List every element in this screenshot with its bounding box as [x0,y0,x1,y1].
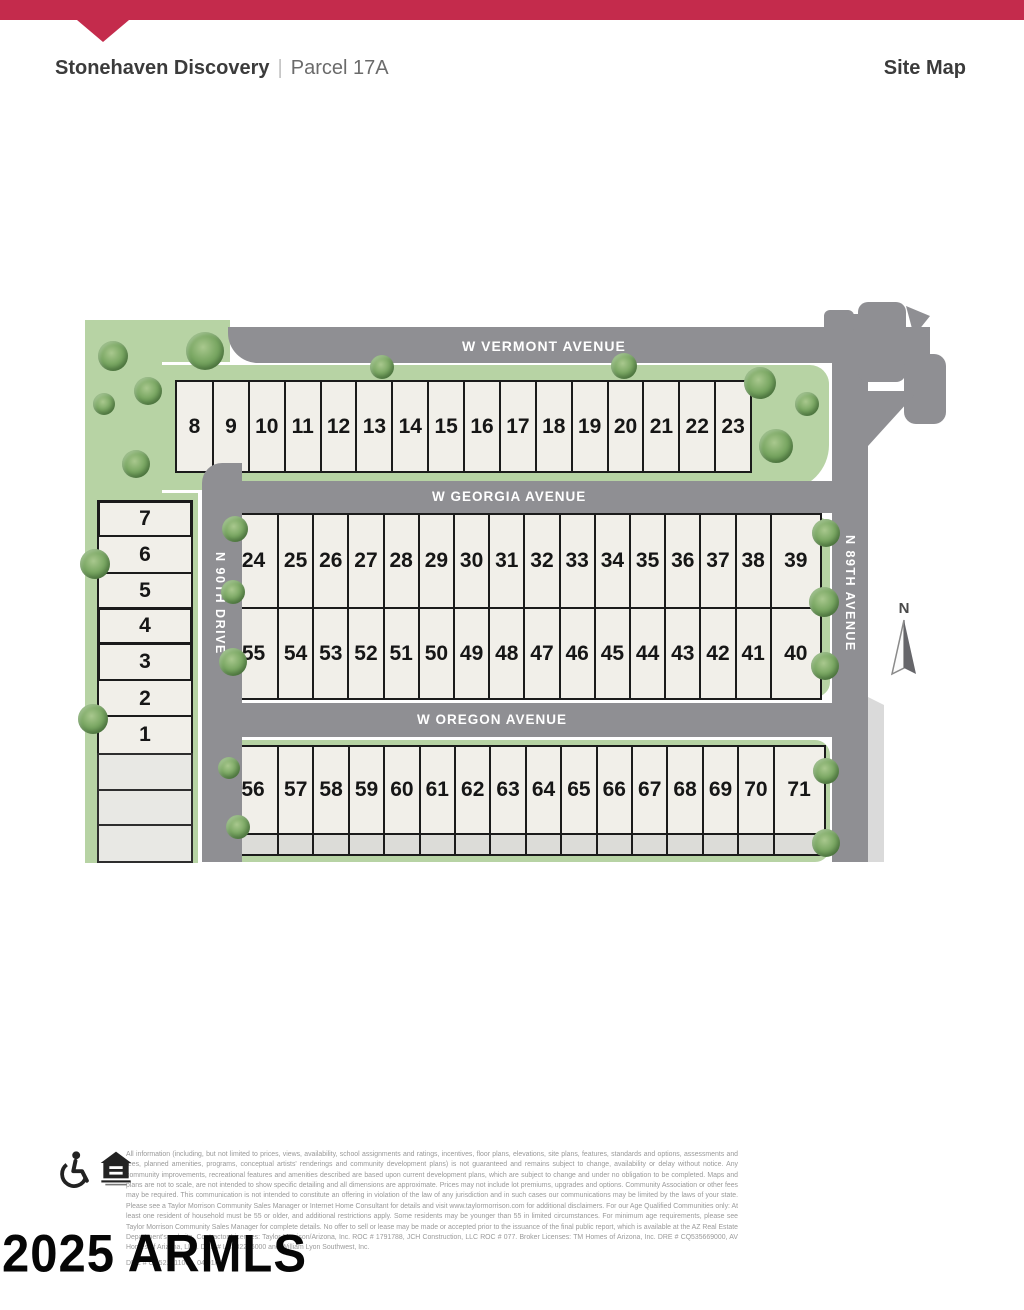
tree-icon [219,648,247,676]
lot-number: 10 [255,415,278,439]
tree-icon [222,516,248,542]
alley-strip [350,833,383,854]
lot-number: 39 [784,549,807,573]
lot-30: 30 [453,513,490,609]
tree-icon [226,815,250,839]
lot-2: 2 [97,679,193,718]
lot-number: 54 [284,642,307,666]
lot-10: 10 [248,380,286,473]
lot-number: 23 [721,415,744,439]
lot-33: 33 [559,513,596,609]
lot-47: 47 [523,607,560,700]
lot-41: 41 [735,607,772,700]
lot-number: 25 [284,549,307,573]
lot-21: 21 [642,380,680,473]
lot-number: 58 [314,747,347,833]
label-w-vermont-avenue: W VERMONT AVENUE [462,338,626,354]
lot-26: 26 [312,513,349,609]
lot-number: 1 [139,723,151,747]
lot-number: 6 [139,543,151,567]
lot-40: 40 [770,607,822,700]
tree-icon [812,829,840,857]
lot-8: 8 [175,380,214,473]
label-w-oregon-avenue: W OREGON AVENUE [417,712,567,727]
north-label: N [884,600,924,617]
lot-68: 68 [666,745,703,856]
tree-icon [811,652,839,680]
lot-32: 32 [523,513,560,609]
lot-number: 18 [542,415,565,439]
lot-20: 20 [607,380,645,473]
lot-unnumbered [97,753,193,792]
lot-number: 37 [706,549,729,573]
lot-58: 58 [312,745,349,856]
lot-number: 21 [650,415,673,439]
lot-number: 5 [139,579,151,603]
lot-number: 49 [460,642,483,666]
alley-strip [527,833,560,854]
tree-icon [809,587,839,617]
lot-number: 52 [354,642,377,666]
lot-44: 44 [629,607,666,700]
lot-number: 34 [601,549,624,573]
lot-number: 71 [775,747,824,833]
lot-22: 22 [678,380,716,473]
tree-icon [93,393,115,415]
label-w-georgia-avenue: W GEORGIA AVENUE [432,489,586,504]
lot-15: 15 [427,380,465,473]
lot-45: 45 [594,607,631,700]
equal-housing-icon [100,1150,132,1188]
lot-number: 2 [139,687,151,711]
lot-53: 53 [312,607,349,700]
alley-strip [385,833,418,854]
lot-unnumbered [97,824,193,863]
lot-number: 45 [601,642,624,666]
lot-number: 35 [636,549,659,573]
lot-7: 7 [97,500,193,538]
lot-29: 29 [418,513,455,609]
lot-9: 9 [212,380,250,473]
lot-6: 6 [97,535,193,575]
lot-number: 24 [242,549,265,573]
tree-icon [98,341,128,371]
lot-63: 63 [489,745,526,856]
lot-34: 34 [594,513,631,609]
lot-number: 14 [399,415,422,439]
lot-11: 11 [284,380,322,473]
lot-number: 60 [385,747,418,833]
lot-number: 36 [671,549,694,573]
lot-number: 3 [139,650,151,674]
lot-number: 15 [434,415,457,439]
lot-number: 33 [566,549,589,573]
lot-number: 47 [530,642,553,666]
lot-3: 3 [97,642,193,682]
lot-number: 22 [686,415,709,439]
lot-12: 12 [320,380,358,473]
lot-number: 9 [225,415,237,439]
north-arrow-icon [889,618,919,676]
lot-5: 5 [97,572,193,610]
tree-icon [370,355,394,379]
lot-number: 4 [139,614,151,638]
lot-number: 70 [739,747,772,833]
site-map: W VERMONT AVENUE W GEORGIA AVENUE W OREG… [0,0,1024,1310]
lot-number: 27 [354,549,377,573]
north-arrow: N [884,600,924,681]
tree-icon [759,429,793,463]
tree-icon [813,758,839,784]
tree-icon [134,377,162,405]
alley-strip [456,833,489,854]
tree-icon [218,757,240,779]
lot-49: 49 [453,607,490,700]
lot-17: 17 [499,380,537,473]
tree-icon [611,353,637,379]
lot-number: 17 [506,415,529,439]
lot-number: 62 [456,747,489,833]
lot-number: 53 [319,642,342,666]
lot-43: 43 [664,607,701,700]
lot-number: 57 [279,747,312,833]
lot-25: 25 [277,513,314,609]
lot-number: 48 [495,642,518,666]
lot-number: 7 [139,507,151,531]
lot-62: 62 [454,745,491,856]
alley-strip [421,833,454,854]
page: { "header": { "title": "Stonehaven Disco… [0,0,1024,1310]
lot-number: 26 [319,549,342,573]
tree-icon [812,519,840,547]
lot-4: 4 [97,607,193,645]
road-junction-top-right [818,296,946,516]
lot-number: 59 [350,747,383,833]
tree-icon [80,549,110,579]
lot-28: 28 [383,513,420,609]
label-n-90th-drive: N 90TH DRIVE [213,552,227,655]
alley-strip [704,833,737,854]
lot-66: 66 [596,745,633,856]
lot-number: 69 [704,747,737,833]
lot-70: 70 [737,745,774,856]
lot-number: 68 [668,747,701,833]
lot-number: 28 [390,549,413,573]
lot-number: 30 [460,549,483,573]
alley-strip [279,833,312,854]
alley-strip [562,833,595,854]
lot-65: 65 [560,745,597,856]
lot-number: 40 [784,642,807,666]
lot-60: 60 [383,745,420,856]
lot-50: 50 [418,607,455,700]
lot-13: 13 [355,380,393,473]
lot-14: 14 [391,380,429,473]
lot-number: 61 [421,747,454,833]
alley-strip [668,833,701,854]
tree-icon [744,367,776,399]
lot-37: 37 [699,513,736,609]
lot-67: 67 [631,745,668,856]
alley-strip [633,833,666,854]
lot-27: 27 [347,513,384,609]
lot-number: 38 [742,549,765,573]
lot-31: 31 [488,513,525,609]
lot-number: 66 [598,747,631,833]
lot-number: 51 [390,642,413,666]
lot-number: 16 [470,415,493,439]
lot-number: 50 [425,642,448,666]
lot-18: 18 [535,380,573,473]
lot-number: 43 [671,642,694,666]
lot-61: 61 [419,745,456,856]
label-n-89th-avenue: N 89TH AVENUE [843,535,857,652]
lot-52: 52 [347,607,384,700]
tree-icon [78,704,108,734]
lot-64: 64 [525,745,562,856]
alley-strip [314,833,347,854]
lot-69: 69 [702,745,739,856]
lot-number: 19 [578,415,601,439]
lot-number: 41 [742,642,765,666]
tree-icon [795,392,819,416]
tree-icon [221,580,245,604]
lot-number: 13 [363,415,386,439]
lot-number: 65 [562,747,595,833]
lot-48: 48 [488,607,525,700]
tree-icon [122,450,150,478]
lot-number: 63 [491,747,524,833]
lot-number: 42 [706,642,729,666]
tree-icon [186,332,224,370]
lot-number: 44 [636,642,659,666]
alley-strip [491,833,524,854]
lot-57: 57 [277,745,314,856]
lot-number: 29 [425,549,448,573]
lot-23: 23 [714,380,752,473]
lot-number: 20 [614,415,637,439]
lot-number: 67 [633,747,666,833]
lot-1: 1 [97,715,193,755]
lot-number: 31 [495,549,518,573]
lot-51: 51 [383,607,420,700]
lot-46: 46 [559,607,596,700]
lot-number: 46 [566,642,589,666]
lot-number: 8 [189,415,201,439]
alley-strip [598,833,631,854]
lot-19: 19 [571,380,609,473]
lot-number: 32 [530,549,553,573]
lot-59: 59 [348,745,385,856]
lot-42: 42 [699,607,736,700]
footer-icons [56,1150,132,1188]
lot-unnumbered [97,789,193,827]
lot-38: 38 [735,513,772,609]
lot-16: 16 [463,380,501,473]
lot-36: 36 [664,513,701,609]
armls-watermark: 2025 ARMLS [2,1224,307,1284]
lot-35: 35 [629,513,666,609]
accessibility-icon [56,1150,92,1188]
lot-number: 11 [292,415,314,439]
lot-54: 54 [277,607,314,700]
alley-strip [739,833,772,854]
lot-number: 64 [527,747,560,833]
lot-number: 12 [327,415,350,439]
